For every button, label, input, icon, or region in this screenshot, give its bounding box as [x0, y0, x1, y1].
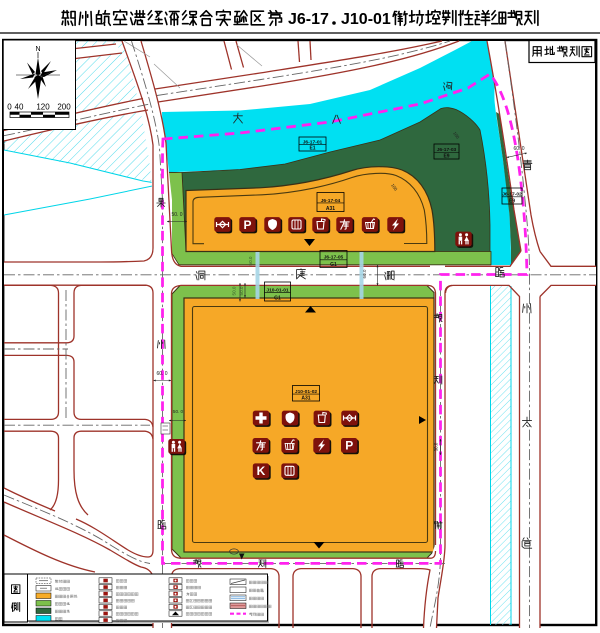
svg-text:0: 0: [7, 103, 12, 112]
svg-text:J6-17: J6-17: [288, 11, 329, 28]
svg-text:J10-01: J10-01: [341, 11, 391, 28]
svg-text:200: 200: [57, 103, 71, 112]
svg-text:J6-17-04: J6-17-04: [321, 198, 341, 204]
svg-text:50. 0: 50. 0: [171, 212, 182, 218]
svg-text:60. 0: 60. 0: [156, 371, 167, 377]
svg-text:A31: A31: [301, 396, 310, 402]
svg-text:60. 0: 60. 0: [513, 146, 524, 152]
svg-text:J10-01-01: J10-01-01: [266, 287, 289, 293]
svg-text:50.0: 50.0: [248, 256, 253, 265]
svg-text:60.0: 60.0: [362, 269, 367, 278]
svg-text:P: P: [243, 218, 251, 232]
svg-text:50. 0: 50. 0: [173, 409, 184, 414]
svg-text:120: 120: [36, 103, 50, 112]
svg-text:J10-01-02: J10-01-02: [295, 389, 318, 395]
svg-text:40: 40: [15, 103, 24, 112]
svg-text:P: P: [345, 439, 353, 453]
svg-text:N: N: [35, 46, 40, 53]
svg-text:K: K: [257, 464, 266, 478]
svg-text:J6-17-03: J6-17-03: [437, 147, 457, 153]
svg-text:J6-17-01: J6-17-01: [303, 140, 323, 146]
svg-text:J6-17-05: J6-17-05: [324, 255, 344, 261]
svg-text:J6-17-02: J6-17-02: [502, 192, 522, 198]
svg-text:E9: E9: [509, 199, 515, 205]
svg-text:G1: G1: [330, 262, 337, 268]
svg-text:E9: E9: [443, 154, 449, 160]
svg-text:A31: A31: [326, 206, 335, 212]
svg-text:50.0: 50.0: [232, 286, 237, 295]
svg-text:G1: G1: [274, 296, 281, 302]
svg-text:E1: E1: [309, 146, 315, 152]
svg-text:30.0: 30.0: [434, 442, 439, 451]
